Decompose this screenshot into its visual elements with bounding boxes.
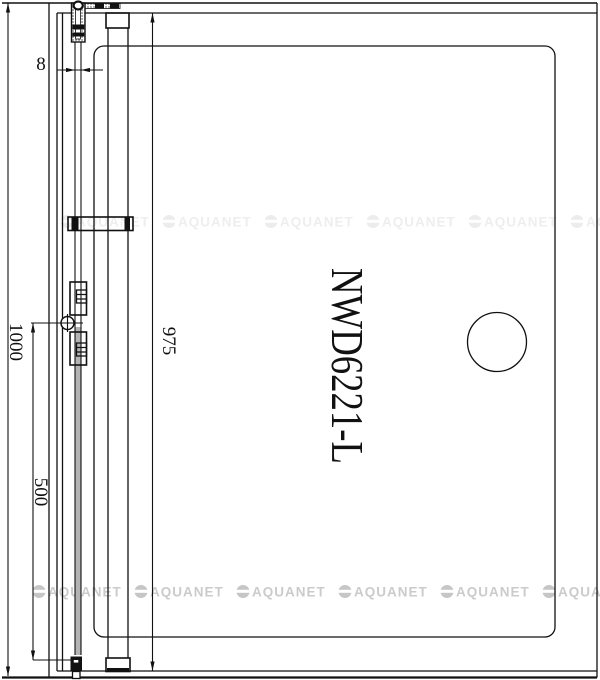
watermark-text: AQUANET bbox=[150, 585, 224, 600]
watermark-text: AQUANET bbox=[178, 215, 252, 230]
watermark-text: AQUANET bbox=[382, 215, 456, 230]
technical-drawing-page: AQUANET AQUANET AQUANET AQUANET AQUANET … bbox=[0, 0, 600, 680]
dimension-label-8: 8 bbox=[36, 54, 46, 75]
watermark-text: AQUANET bbox=[280, 215, 354, 230]
dimension-label-1000: 1000 bbox=[5, 323, 26, 361]
pivot-pin-top bbox=[74, 2, 83, 10]
bottom-pivot-hinge bbox=[71, 657, 83, 679]
pivot-pin-bottom bbox=[73, 672, 81, 679]
drawing-background bbox=[0, 0, 600, 680]
watermark-text: AQUANET bbox=[48, 585, 122, 600]
dimension-label-500: 500 bbox=[30, 478, 51, 507]
watermark-text: AQUANET bbox=[456, 585, 530, 600]
glass-pane-fill bbox=[75, 327, 80, 655]
watermark-text: AQUANET bbox=[558, 585, 600, 600]
watermark-text: AQUANET bbox=[252, 585, 326, 600]
watermark-row-upper: AQUANET AQUANET AQUANET AQUANET AQUANET … bbox=[60, 215, 600, 230]
dimension-label-975: 975 bbox=[158, 327, 179, 356]
watermark-row-lower: AQUANET AQUANET AQUANET AQUANET AQUANET … bbox=[32, 585, 600, 600]
model-number: NWD6221-L bbox=[322, 268, 373, 464]
shower-door-technical-drawing: AQUANET AQUANET AQUANET AQUANET AQUANET … bbox=[0, 0, 600, 680]
watermark-text: AQUANET bbox=[354, 585, 428, 600]
watermark-text: AQUANET bbox=[586, 215, 600, 230]
watermark-text: AQUANET bbox=[484, 215, 558, 230]
